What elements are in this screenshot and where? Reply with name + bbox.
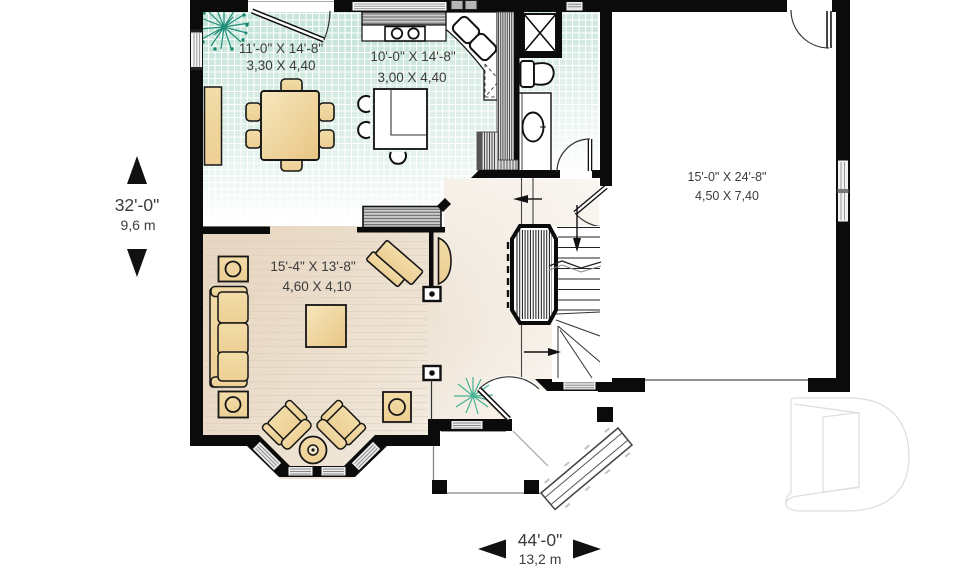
svg-text:3,30 X 4,40: 3,30 X 4,40 <box>246 58 315 73</box>
svg-text:4,50 X 7,40: 4,50 X 7,40 <box>695 189 759 203</box>
svg-text:9,6 m: 9,6 m <box>120 217 155 233</box>
svg-text:13,2 m: 13,2 m <box>519 551 562 567</box>
svg-text:3,00 X 4,40: 3,00 X 4,40 <box>377 70 446 85</box>
svg-text:4,60 X 4,10: 4,60 X 4,10 <box>282 279 351 294</box>
svg-text:15'-4" X 13'-8": 15'-4" X 13'-8" <box>270 259 355 274</box>
svg-text:15'-0" X 24'-8": 15'-0" X 24'-8" <box>688 170 767 184</box>
svg-text:11'-0" X 14'-8": 11'-0" X 14'-8" <box>239 41 323 56</box>
svg-text:32'-0": 32'-0" <box>115 195 160 215</box>
svg-text:10'-0" X 14'-8": 10'-0" X 14'-8" <box>370 49 455 64</box>
svg-text:44'-0": 44'-0" <box>518 530 563 550</box>
